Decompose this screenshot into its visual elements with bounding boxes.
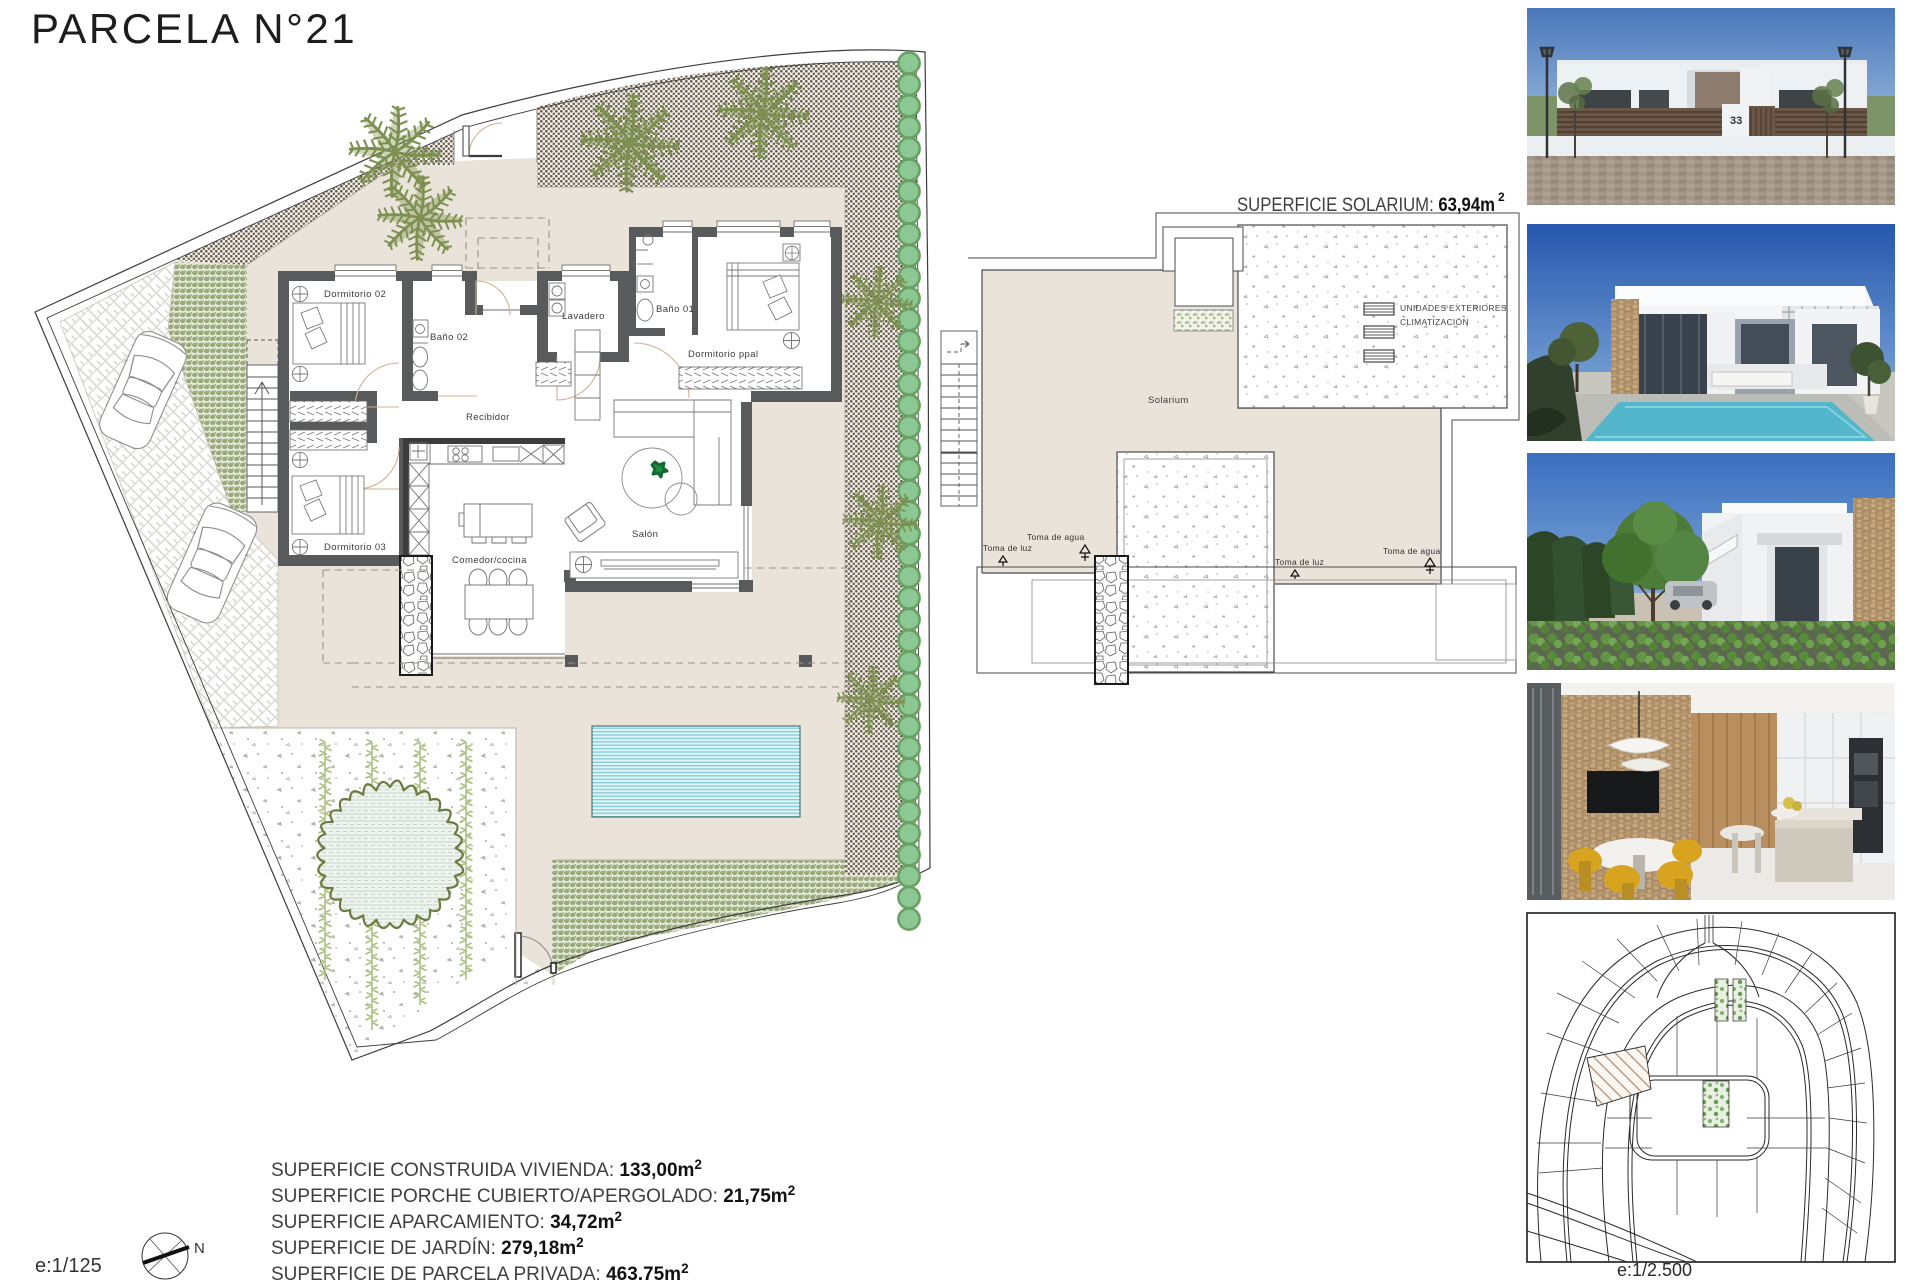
svg-text:Dormitorio ppal: Dormitorio ppal: [688, 349, 758, 360]
svg-text:Dormitorio 03: Dormitorio 03: [324, 542, 386, 553]
svg-text:SUPERFICIE PORCHE CUBIERTO/APE: SUPERFICIE PORCHE CUBIERTO/APERGOLADO: 2…: [271, 1183, 795, 1207]
svg-text:SUPERFICIE DE JARDÍN: 279,18m2: SUPERFICIE DE JARDÍN: 279,18m2: [271, 1235, 584, 1259]
svg-text:Toma de agua: Toma de agua: [1383, 546, 1440, 556]
svg-text:Lavadero: Lavadero: [562, 311, 605, 322]
svg-text:CLIMATIZACIÓN: CLIMATIZACIÓN: [1400, 317, 1469, 327]
svg-text:Baño 01: Baño 01: [656, 304, 694, 315]
svg-text:Solarium: Solarium: [1148, 395, 1189, 406]
svg-text:Salón: Salón: [632, 529, 658, 540]
svg-text:Dormitorio 02: Dormitorio 02: [324, 289, 386, 300]
svg-text:Recibidor: Recibidor: [466, 412, 510, 423]
svg-text:UNIDADES EXTERIORES: UNIDADES EXTERIORES: [1400, 303, 1507, 313]
svg-text:Comedor/cocina: Comedor/cocina: [452, 555, 527, 566]
svg-text:SUPERFICIE DE PARCELA PRIVADA:: SUPERFICIE DE PARCELA PRIVADA: 463,75m2: [271, 1261, 689, 1280]
svg-text:e:1/125: e:1/125: [35, 1255, 102, 1277]
svg-text:PARCELA N°21: PARCELA N°21: [31, 5, 357, 52]
svg-text:Toma de luz: Toma de luz: [1275, 557, 1324, 567]
svg-text:N: N: [194, 1240, 205, 1257]
svg-text:2: 2: [1498, 190, 1505, 204]
svg-text:SUPERFICIE APARCAMIENTO: 34,72: SUPERFICIE APARCAMIENTO: 34,72m2: [271, 1209, 622, 1233]
svg-text:33: 33: [1730, 115, 1742, 127]
svg-text:Baño 02: Baño 02: [430, 332, 468, 343]
svg-text:SUPERFICIE CONSTRUIDA VIVIENDA: SUPERFICIE CONSTRUIDA VIVIENDA: 133,00m2: [271, 1157, 702, 1181]
svg-text:Toma de agua: Toma de agua: [1027, 532, 1084, 542]
svg-text:Toma de luz: Toma de luz: [983, 543, 1032, 553]
svg-text:e:1/2.500: e:1/2.500: [1617, 1260, 1692, 1280]
